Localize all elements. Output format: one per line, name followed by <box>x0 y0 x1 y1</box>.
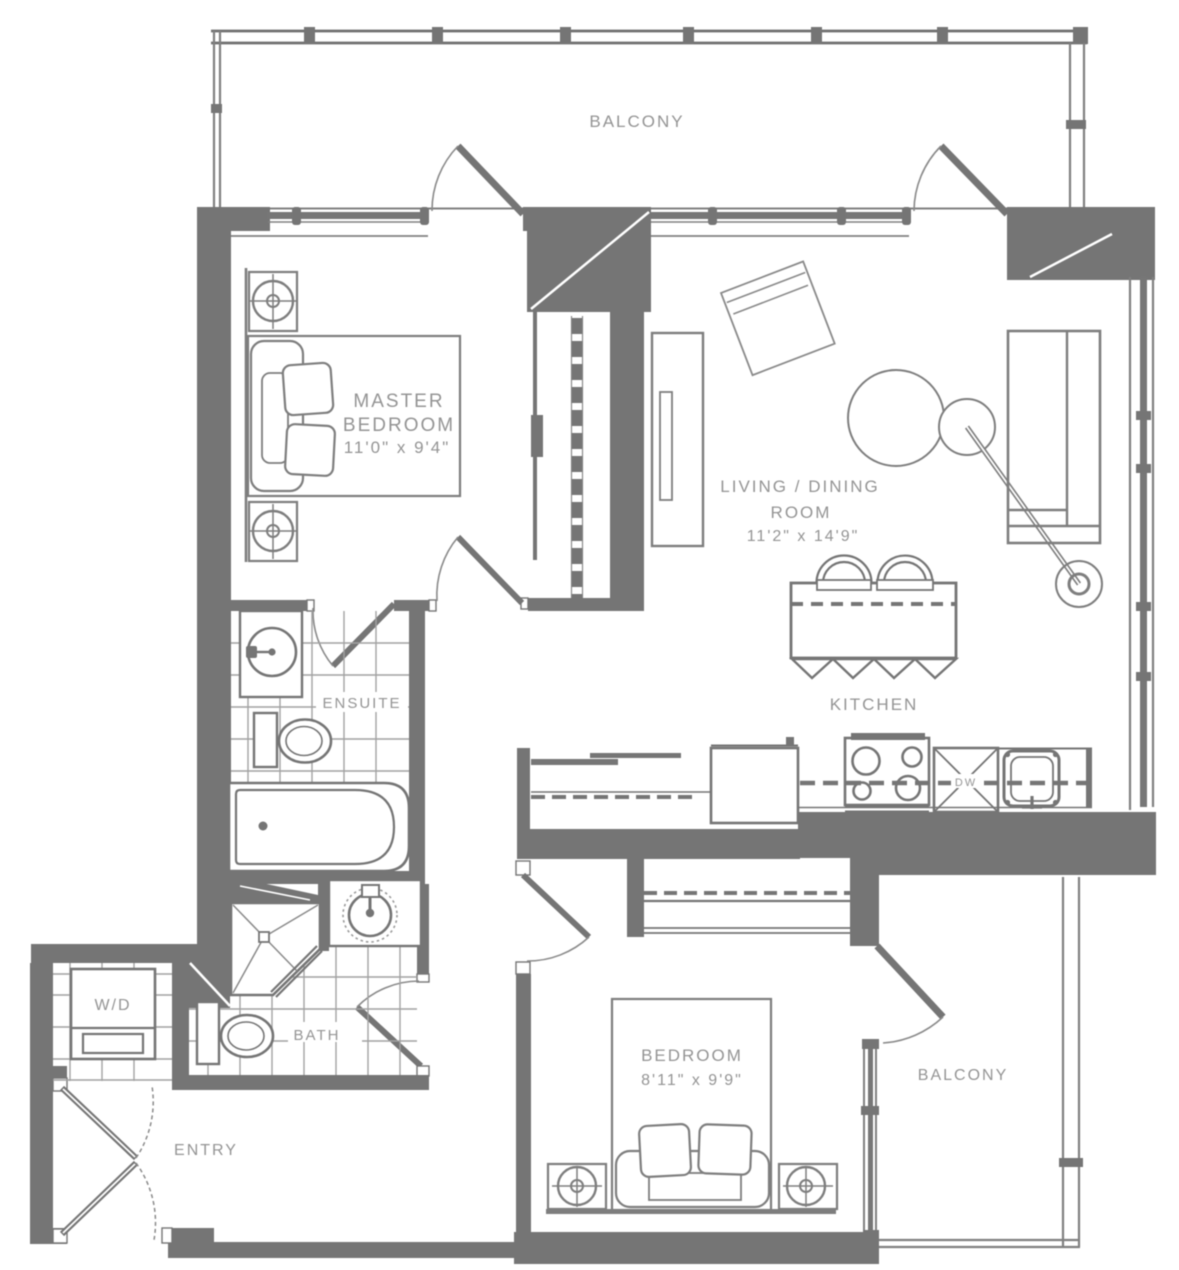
svg-text:BATH: BATH <box>294 1027 341 1044</box>
svg-text:W/D: W/D <box>94 997 131 1014</box>
svg-text:BEDROOM: BEDROOM <box>641 1046 743 1065</box>
svg-text:DW: DW <box>955 777 977 789</box>
svg-text:ENTRY: ENTRY <box>174 1142 238 1159</box>
svg-text:ENSUITE: ENSUITE <box>322 695 401 712</box>
svg-text:KITCHEN: KITCHEN <box>830 695 919 714</box>
svg-text:BALCONY: BALCONY <box>589 112 684 131</box>
svg-text:11'2" x 14'9": 11'2" x 14'9" <box>747 528 860 545</box>
svg-text:MASTER: MASTER <box>353 391 444 412</box>
svg-text:LIVING / DINING: LIVING / DINING <box>720 477 879 496</box>
svg-text:ROOM: ROOM <box>771 503 832 522</box>
svg-text:BEDROOM: BEDROOM <box>343 415 455 436</box>
svg-text:BALCONY: BALCONY <box>918 1067 1008 1084</box>
svg-text:8'11" x 9'9": 8'11" x 9'9" <box>641 1072 743 1089</box>
svg-text:11'0" x 9'4": 11'0" x 9'4" <box>344 438 451 457</box>
